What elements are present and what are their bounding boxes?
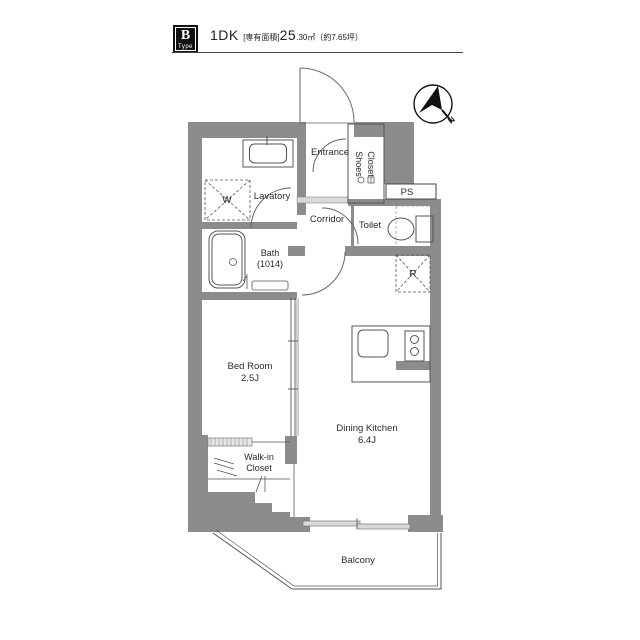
wall-top-right-block bbox=[384, 122, 414, 184]
entrance-step bbox=[297, 197, 348, 203]
label-dk: Dining Kitchen bbox=[336, 423, 397, 434]
wall-corridor-bottom bbox=[345, 246, 441, 256]
wic-folding-door bbox=[208, 438, 290, 446]
bath-counter-icon bbox=[243, 274, 288, 290]
toilet-icon bbox=[388, 206, 433, 246]
meter-box-icon bbox=[368, 177, 374, 183]
wic-lower-door-mark bbox=[256, 476, 265, 492]
hanger-pipe-icon bbox=[214, 458, 237, 476]
label-lavatory: Lavatory bbox=[254, 191, 291, 202]
meter-icon bbox=[358, 177, 364, 183]
balcony-window-pane-1 bbox=[303, 521, 360, 526]
wall-bath-top bbox=[188, 222, 297, 229]
floorplan-svg: N Entrance Shoes Closet Lavatory Corrido… bbox=[0, 0, 640, 640]
balcony-railing bbox=[213, 530, 441, 589]
dk-door-arc bbox=[302, 252, 345, 295]
label-washer: W bbox=[222, 195, 232, 206]
label-bedroom-size: 2.5J bbox=[241, 373, 259, 384]
wall-bath-bottom bbox=[188, 292, 297, 300]
wall-top-left bbox=[188, 122, 306, 138]
front-door-arc bbox=[300, 68, 354, 122]
label-bedroom: Bed Room bbox=[228, 361, 273, 372]
stove-icon bbox=[405, 331, 424, 361]
bathtub-icon bbox=[209, 231, 245, 288]
wall-kitchen-stub bbox=[396, 361, 441, 370]
label-entrance: Entrance bbox=[311, 147, 349, 158]
wall-partition-stub bbox=[285, 436, 297, 464]
label-bath-size: (1014) bbox=[257, 259, 283, 269]
label-shoes-closet-2: Closet bbox=[366, 151, 376, 177]
label-balcony: Balcony bbox=[341, 555, 375, 566]
kitchen-counter-icon bbox=[352, 326, 430, 382]
kitchen-sink-icon bbox=[358, 330, 388, 357]
wall-entrance-lavatory bbox=[297, 138, 306, 215]
label-dk-size: 6.4J bbox=[358, 435, 376, 446]
vanity-sink-icon bbox=[243, 136, 293, 167]
wall-bottom-right-block bbox=[408, 515, 443, 532]
label-toilet: Toilet bbox=[359, 220, 382, 231]
label-shoes-closet-1: Shoes bbox=[354, 151, 364, 177]
floorplan-page: B Type 1DK [専有面積]25.30㎡（約7.65坪） bbox=[0, 0, 640, 640]
label-wic-1: Walk-in bbox=[244, 452, 274, 462]
wall-corridor-stub-left bbox=[288, 246, 305, 256]
balcony-window-pane-2 bbox=[357, 524, 410, 529]
label-refrigerator: R bbox=[409, 269, 416, 280]
partition-track bbox=[296, 298, 299, 436]
label-wic-2: Closet bbox=[246, 463, 272, 473]
wall-left bbox=[188, 122, 202, 435]
compass-icon: N bbox=[414, 85, 457, 126]
label-bath: Bath bbox=[261, 248, 280, 258]
label-ps: PS bbox=[401, 187, 414, 198]
compass-north-label: N bbox=[446, 114, 457, 126]
label-corridor: Corridor bbox=[310, 214, 344, 225]
